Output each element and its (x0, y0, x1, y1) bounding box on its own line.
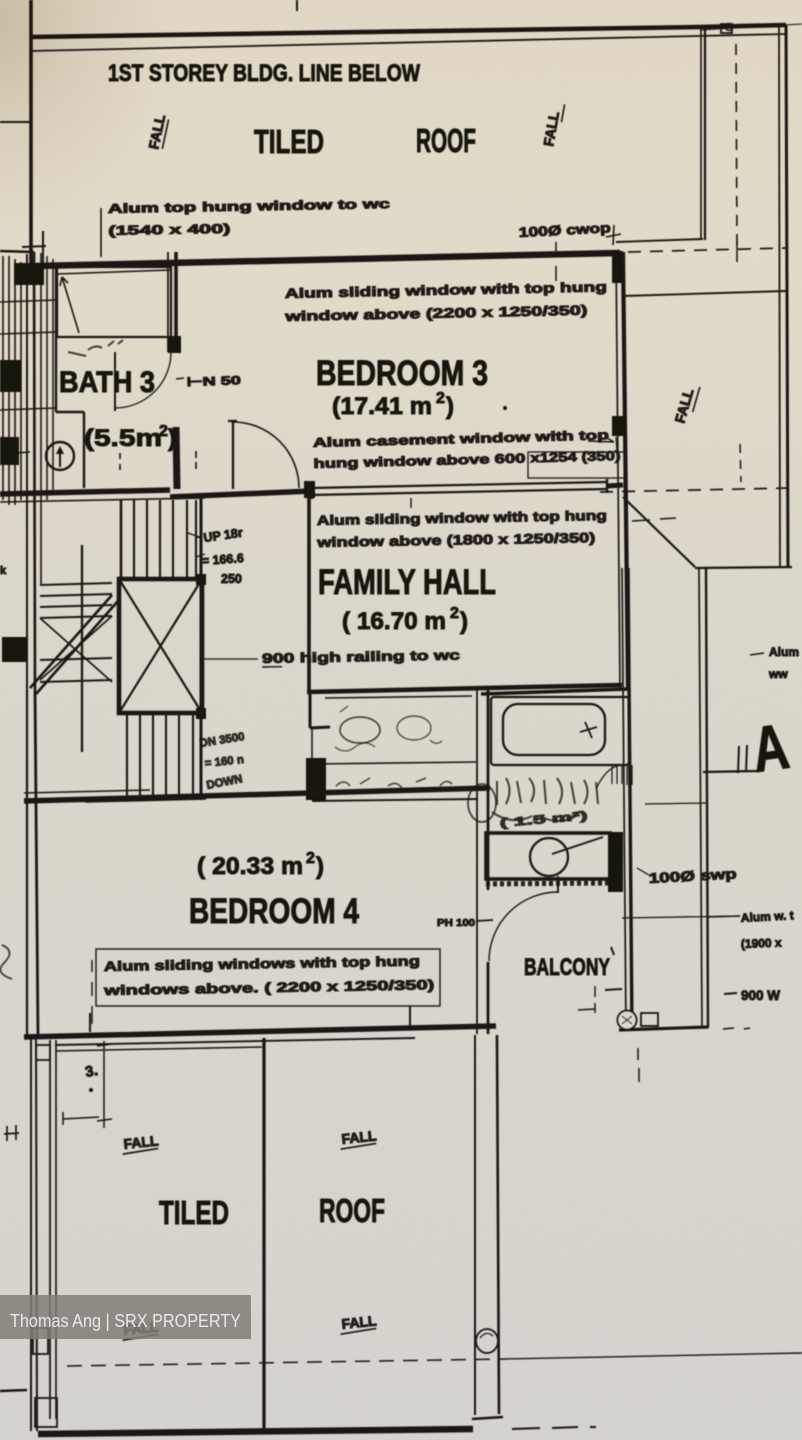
svg-text:(1540 x 400): (1540 x 400) (108, 221, 230, 238)
svg-text:( 16.70 m: ( 16.70 m (342, 608, 446, 635)
svg-text:TILED: TILED (159, 1194, 229, 1231)
svg-text:PH 100: PH 100 (437, 918, 475, 929)
svg-text:BALCONY: BALCONY (524, 954, 610, 981)
svg-text:BEDROOM 3: BEDROOM 3 (316, 354, 488, 393)
svg-text:250: 250 (221, 572, 242, 586)
svg-text:x1254 (350): x1254 (350) (530, 448, 620, 465)
svg-text:): ) (446, 393, 454, 420)
svg-text:k: k (0, 565, 7, 577)
svg-text:⊢N 50: ⊢N 50 (187, 373, 242, 389)
svg-text:): ) (460, 608, 468, 635)
svg-text:900 W: 900 W (741, 988, 780, 1003)
svg-text:BATH 3: BATH 3 (59, 366, 155, 399)
svg-text:Alum w. t: Alum w. t (740, 908, 794, 925)
svg-text:1ST STOREY BLDG. LINE BELOW: 1ST STOREY BLDG. LINE BELOW (108, 60, 420, 87)
svg-text:( 20.33 m: ( 20.33 m (197, 853, 303, 880)
svg-text:): ) (316, 853, 324, 880)
svg-text:2: 2 (450, 605, 459, 622)
svg-text:Thomas Ang | SRX PROPERTY: Thomas Ang | SRX PROPERTY (10, 1311, 241, 1331)
svg-text:TILED: TILED (254, 123, 324, 160)
svg-text:(5.5m: (5.5m (84, 425, 162, 452)
svg-text:ROOF: ROOF (416, 122, 476, 159)
svg-text:(17.41 m: (17.41 m (332, 393, 432, 420)
svg-text:2: 2 (306, 850, 315, 867)
svg-text:2: 2 (436, 390, 445, 407)
svg-text:Alum: Alum (769, 645, 799, 659)
svg-text:(1900 x: (1900 x (741, 936, 782, 951)
svg-text:= 166.6: = 166.6 (201, 551, 244, 568)
svg-text:ww: ww (768, 667, 788, 681)
svg-text:BEDROOM 4: BEDROOM 4 (189, 892, 359, 931)
svg-text:FAMILY HALL: FAMILY HALL (318, 563, 496, 602)
svg-text:): ) (168, 425, 176, 452)
svg-text:ROOF: ROOF (319, 1192, 385, 1229)
svg-text:2: 2 (159, 423, 168, 440)
